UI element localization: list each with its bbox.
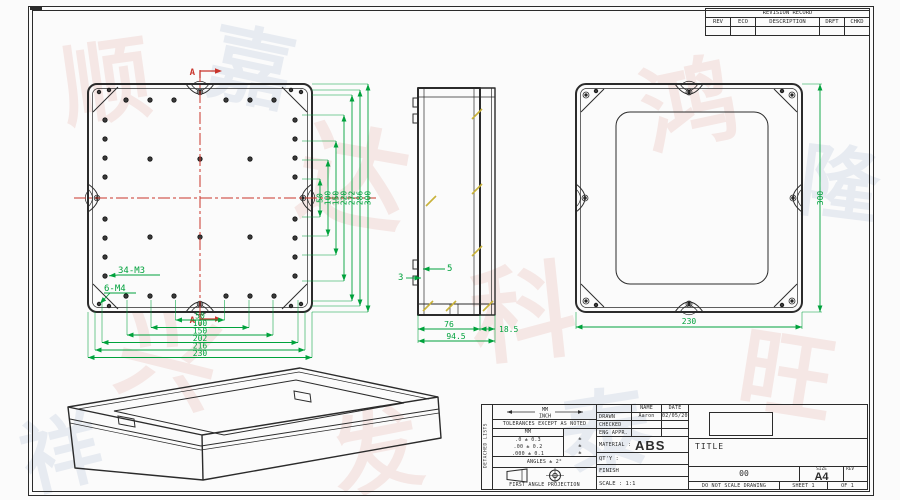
dim-height-300: 300	[816, 191, 825, 206]
revision-empty-row	[706, 26, 869, 35]
revision-table: REVISION RECORD REV ECO DESCRIPTION DRFT…	[705, 8, 870, 36]
isometric-view	[48, 360, 488, 500]
date-header: DATE	[661, 405, 688, 412]
sheet-of: OF 1	[827, 482, 867, 489]
dim-5: 5	[447, 264, 452, 274]
drawn-label: DRAWN	[597, 413, 631, 420]
dim-3: 3	[398, 273, 403, 283]
dim-94-5: 94.5	[446, 332, 465, 341]
logo-box	[709, 412, 773, 436]
material-label: MATERIAL :	[599, 442, 631, 448]
dim-width-230: 230	[682, 317, 697, 326]
drft-col-header: DRFT	[819, 18, 844, 26]
sheet-corner-mark	[30, 7, 42, 10]
angles-tolerance: ANGLES ± 2°	[493, 457, 596, 468]
sheet-number: SHEET 1	[779, 482, 827, 489]
finish-label: FINISH	[597, 465, 688, 474]
units-symbol: MM INCH	[493, 405, 596, 420]
do-not-scale-note: DO NOT SCALE DRAWING	[689, 482, 779, 489]
dim-76: 76	[444, 320, 454, 329]
isometric-box	[68, 368, 441, 480]
scale-label: SCALE : 1:1	[597, 477, 688, 487]
dim-230: 230	[193, 349, 208, 358]
title-block: DETACHED LISTS MM INCH TOLERANCES EXCEPT…	[481, 404, 868, 490]
size-value: A4	[800, 473, 843, 482]
thread-label-m3: 34-M3	[118, 266, 145, 276]
front-view: A A 50 100 150 202 216 230	[70, 64, 380, 376]
projection-label: FIRST ANGLE PROJECTION	[493, 482, 596, 488]
revision-table-title: REVISION RECORD	[706, 9, 869, 17]
qty-label: QT'Y :	[597, 453, 688, 462]
tolerance-mark: ±	[564, 450, 596, 456]
dim-18-5: 18.5	[499, 325, 518, 334]
lid-outline	[576, 84, 802, 312]
name-header: NAME	[631, 405, 661, 412]
dim-v300: 300	[364, 191, 373, 206]
tolerance-col-header: MM	[493, 429, 563, 437]
tolerance-mark: ±	[564, 436, 596, 443]
back-view: 230 300	[556, 64, 876, 374]
eco-col-header: ECO	[730, 18, 755, 26]
tolerance-block: MM INCH TOLERANCES EXCEPT AS NOTED MM .0…	[493, 405, 597, 489]
chkd-col-header: CHKD	[844, 18, 869, 26]
thread-label-m4: 6-M4	[104, 284, 126, 294]
drawn-name: Aaron	[631, 413, 661, 420]
tolerance-mark: ±	[564, 443, 596, 450]
drawing-number: 00	[689, 467, 799, 481]
title-block-side-strip: DETACHED LISTS	[482, 405, 493, 489]
units-top-label: MM	[542, 407, 548, 413]
approvals-block: NAME DATE DRAWN Aaron 02/05/2015 CHECKED	[597, 405, 689, 489]
section-marker-top: A	[190, 68, 222, 78]
boss-marks	[423, 109, 493, 311]
checked-label: CHECKED	[597, 421, 631, 428]
back-dimensions: 230 300	[576, 84, 825, 329]
units-bottom-label: INCH	[539, 414, 551, 420]
description-col-header: DESCRIPTION	[755, 18, 819, 26]
side-strip-label: DETACHED LISTS	[484, 406, 489, 486]
section-letter: A	[190, 68, 196, 78]
lid-corners	[581, 89, 797, 307]
rev-label: REV	[844, 467, 867, 473]
tolerance-row: .0 ± 0.3	[493, 437, 563, 444]
tolerance-row: .000 ± 0.1	[493, 451, 563, 456]
title-label: TITLE	[689, 439, 867, 451]
title-area: TITLE 00 SIZE A4 REV DO NOT SCALE DRAWIN…	[689, 405, 867, 489]
material-value: ABS	[635, 438, 665, 453]
side-view: 5 3 76 18.5 94.5	[392, 64, 542, 364]
tolerance-note: TOLERANCES EXCEPT AS NOTED	[493, 420, 596, 429]
eng-appr-label: ENG APPR.	[597, 429, 631, 436]
rev-col-header: REV	[706, 18, 730, 26]
drawing-sheet: 顺 达 鸿 兴 科 旺 发 嘉 泰 隆 祥	[0, 0, 900, 500]
tolerance-row: .00 ± 0.2	[493, 444, 563, 451]
drawn-date: 02/05/2015	[661, 413, 688, 420]
